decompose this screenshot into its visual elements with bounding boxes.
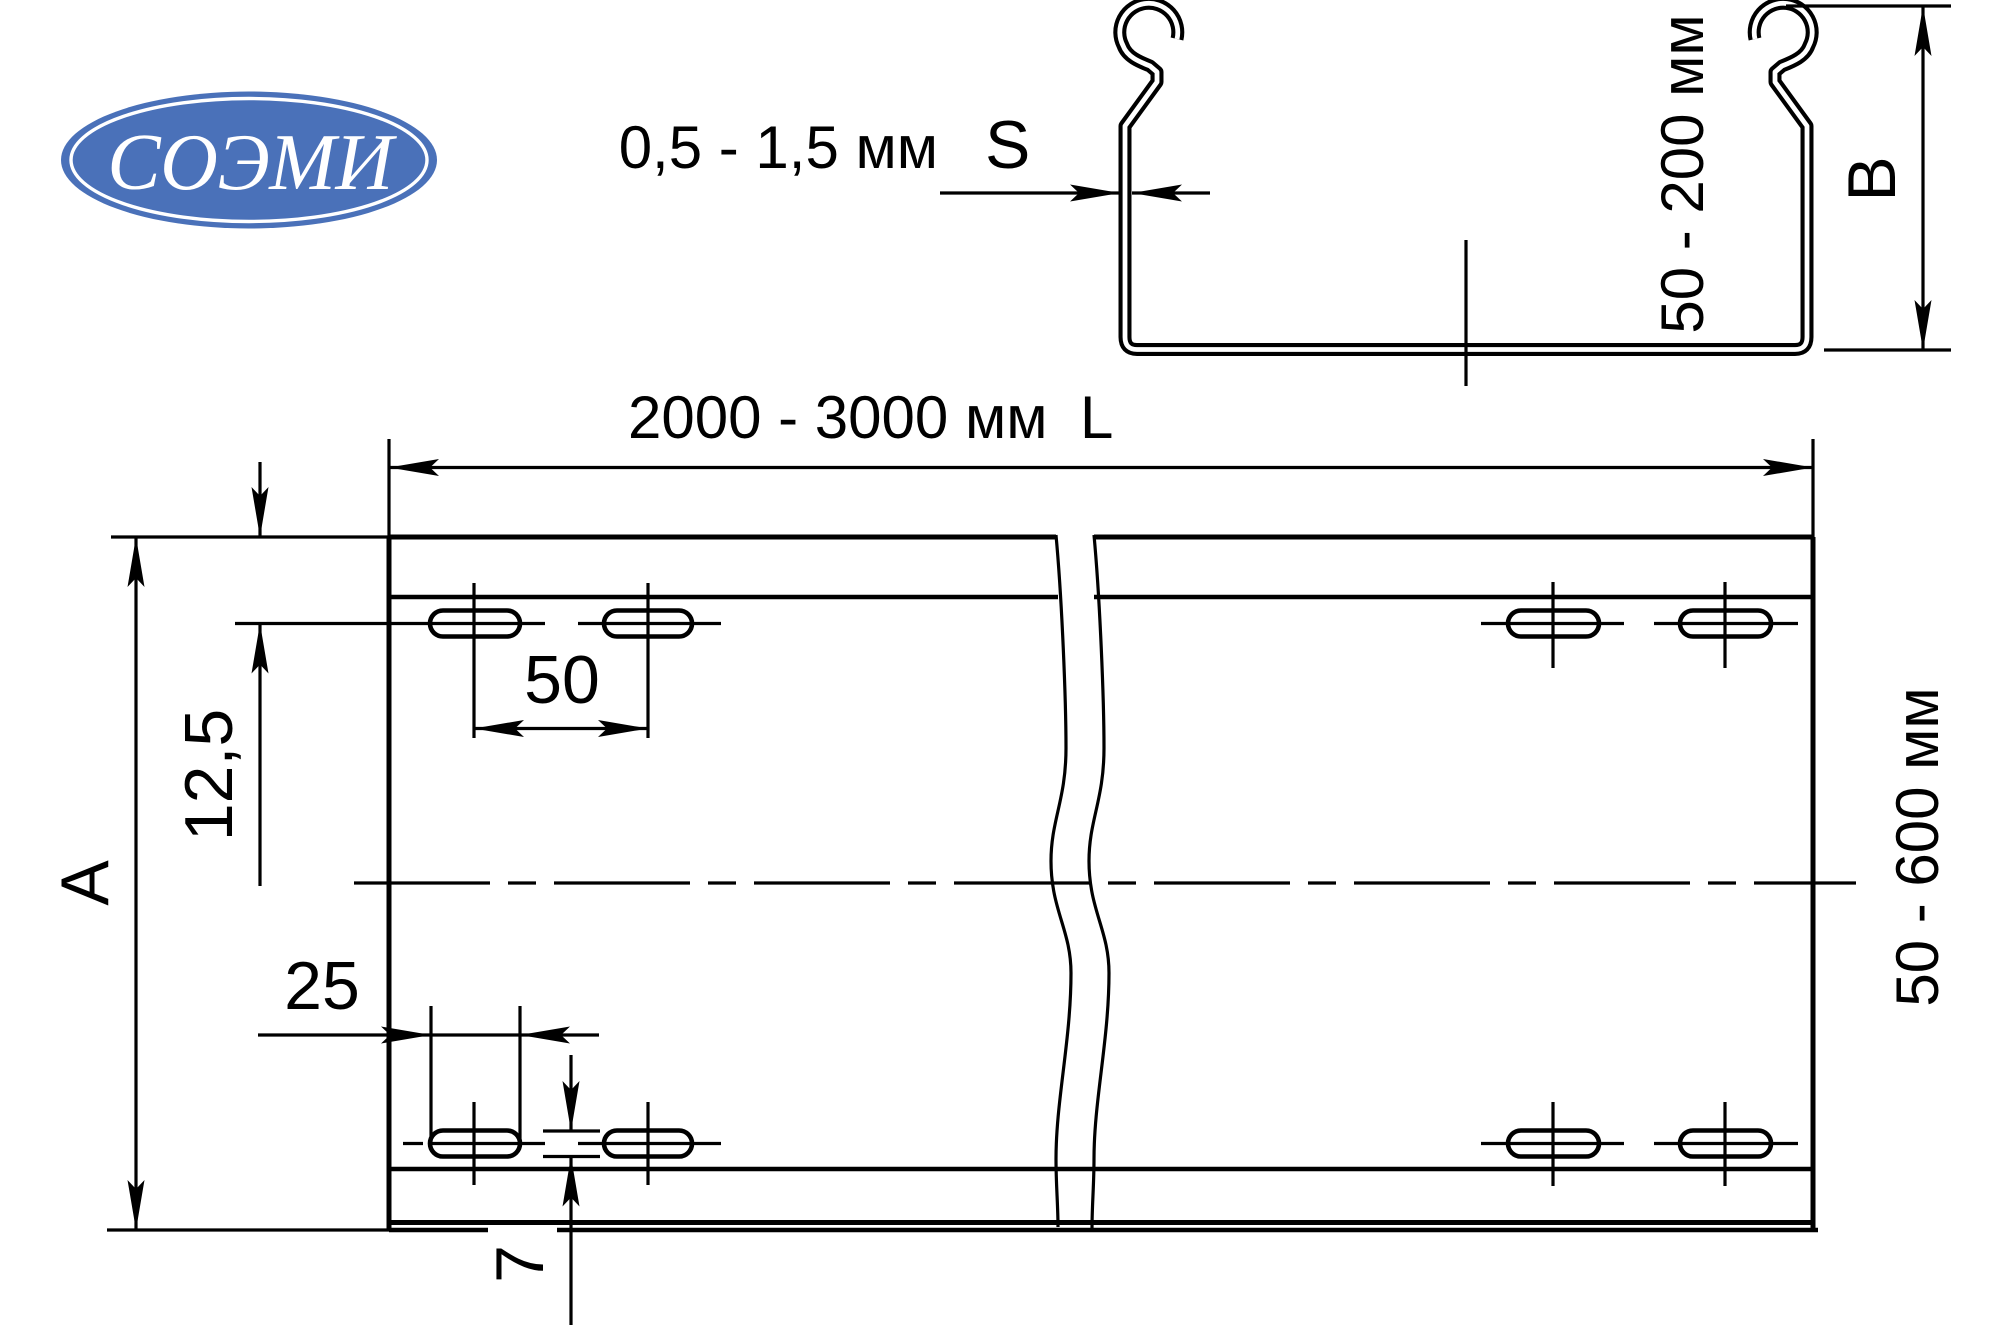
- svg-text:50: 50: [524, 642, 600, 718]
- svg-text:B: B: [1834, 156, 1910, 201]
- svg-text:12,5: 12,5: [171, 709, 247, 841]
- svg-text:7: 7: [482, 1245, 558, 1283]
- svg-text:S: S: [985, 107, 1030, 183]
- svg-text:L: L: [1080, 384, 1113, 451]
- svg-text:A: A: [47, 860, 123, 906]
- svg-text:50 - 200 мм: 50 - 200 мм: [1649, 14, 1716, 333]
- svg-text:0,5 - 1,5 мм: 0,5 - 1,5 мм: [619, 114, 938, 181]
- svg-text:СОЭМИ: СОЭМИ: [107, 119, 397, 207]
- svg-text:25: 25: [284, 948, 360, 1024]
- svg-text:2000 - 3000 мм: 2000 - 3000 мм: [628, 384, 1047, 451]
- svg-text:50 - 600 мм: 50 - 600 мм: [1884, 687, 1951, 1006]
